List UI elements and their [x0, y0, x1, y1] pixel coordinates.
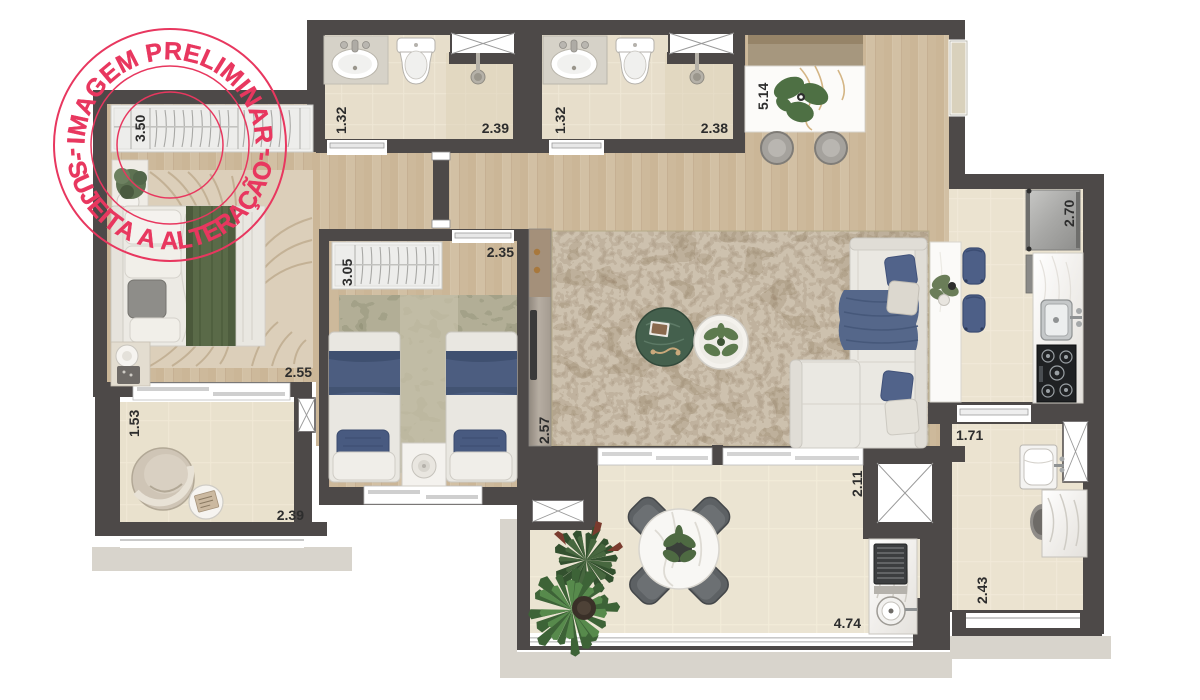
svg-text:2.11: 2.11 — [849, 470, 865, 497]
svg-text:2.70: 2.70 — [1061, 200, 1077, 227]
svg-text:R: R — [248, 124, 278, 145]
svg-text:2.35: 2.35 — [487, 244, 514, 260]
svg-text:5.14: 5.14 — [755, 83, 771, 110]
svg-text:2.39: 2.39 — [277, 507, 304, 523]
svg-text:1.71: 1.71 — [956, 427, 983, 443]
svg-text:3.05: 3.05 — [339, 259, 355, 286]
svg-text:1.32: 1.32 — [333, 107, 349, 134]
svg-text:2.39: 2.39 — [482, 120, 509, 136]
svg-text:1.32: 1.32 — [552, 107, 568, 134]
svg-text:4.74: 4.74 — [834, 615, 861, 631]
svg-text:R: R — [164, 37, 183, 66]
svg-text:2.38: 2.38 — [701, 120, 728, 136]
svg-text:2.43: 2.43 — [974, 577, 990, 604]
svg-text:3.50: 3.50 — [132, 115, 148, 142]
svg-text:1.53: 1.53 — [126, 410, 142, 437]
svg-text:2.55: 2.55 — [285, 364, 312, 380]
svg-text:2.57: 2.57 — [536, 417, 552, 444]
